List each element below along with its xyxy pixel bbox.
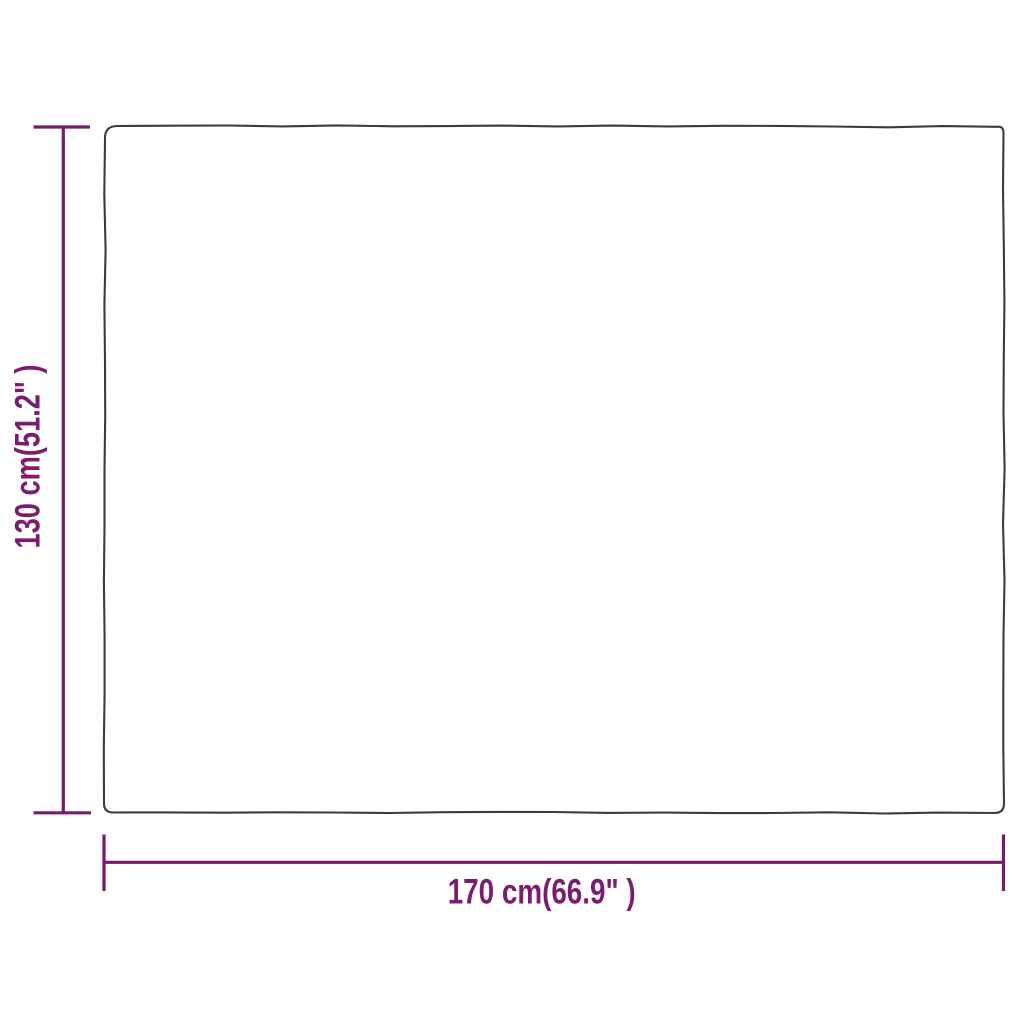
svg-text:130 cm(51.2" ): 130 cm(51.2" ) [9,365,48,549]
svg-text:170 cm(66.9" ): 170 cm(66.9" ) [448,873,636,912]
